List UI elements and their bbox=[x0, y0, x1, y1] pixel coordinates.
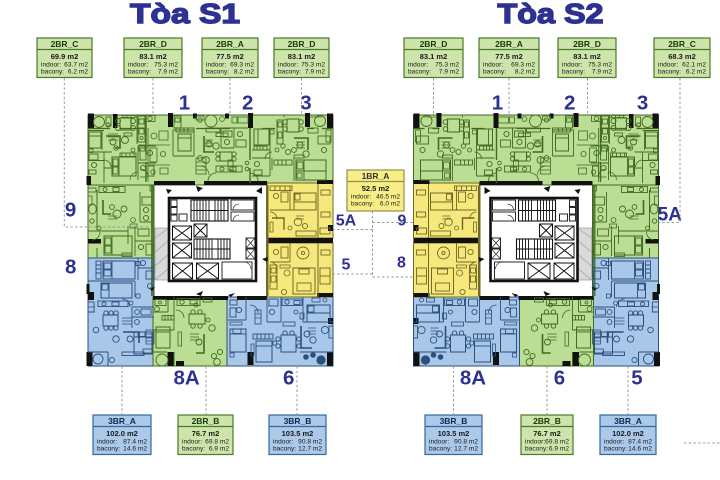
svg-text:bacony:: bacony: bbox=[525, 446, 548, 453]
svg-text:75.3 m2: 75.3 m2 bbox=[301, 62, 325, 69]
svg-text:3: 3 bbox=[637, 91, 648, 114]
svg-text:3BR_B: 3BR_B bbox=[440, 416, 468, 426]
svg-text:6.2 m2: 6.2 m2 bbox=[68, 69, 88, 76]
svg-text:bacony:: bacony: bbox=[97, 446, 120, 453]
svg-text:indoor:: indoor: bbox=[182, 439, 202, 446]
svg-text:2BR_B: 2BR_B bbox=[192, 416, 220, 426]
svg-text:indoor:: indoor: bbox=[604, 439, 624, 446]
svg-text:69.3 m2: 69.3 m2 bbox=[511, 62, 535, 69]
svg-text:8: 8 bbox=[65, 256, 76, 279]
svg-text:indoor:: indoor: bbox=[128, 62, 148, 69]
svg-text:indoor:: indoor: bbox=[429, 439, 449, 446]
svg-text:2: 2 bbox=[564, 91, 575, 114]
svg-text:103.5 m2: 103.5 m2 bbox=[438, 429, 470, 438]
svg-text:6.9 m2: 6.9 m2 bbox=[209, 446, 229, 453]
svg-text:87.4 m2: 87.4 m2 bbox=[123, 439, 147, 446]
svg-text:7.9 m2: 7.9 m2 bbox=[439, 69, 459, 76]
svg-text:bacony:: bacony: bbox=[562, 69, 585, 76]
svg-text:69.8 m2: 69.8 m2 bbox=[545, 439, 569, 446]
svg-text:bacony:: bacony: bbox=[658, 69, 681, 76]
svg-text:7.9 m2: 7.9 m2 bbox=[158, 69, 178, 76]
svg-text:46.5 m2: 46.5 m2 bbox=[376, 194, 400, 201]
svg-text:bacony:: bacony: bbox=[429, 446, 452, 453]
svg-text:9: 9 bbox=[397, 212, 406, 229]
svg-text:77.5 m2: 77.5 m2 bbox=[495, 52, 523, 61]
svg-text:3BR_A: 3BR_A bbox=[108, 416, 136, 426]
svg-text:indoor:: indoor: bbox=[97, 439, 117, 446]
svg-text:75.3 m2: 75.3 m2 bbox=[154, 62, 178, 69]
svg-text:bacony:: bacony: bbox=[483, 69, 506, 76]
svg-text:3BR_B: 3BR_B bbox=[284, 416, 312, 426]
svg-text:bacony:: bacony: bbox=[408, 69, 431, 76]
svg-text:7.9 m2: 7.9 m2 bbox=[592, 69, 612, 76]
svg-text:9: 9 bbox=[65, 198, 76, 221]
svg-text:2BR_C: 2BR_C bbox=[668, 39, 696, 49]
svg-text:63.7 m2: 63.7 m2 bbox=[64, 62, 88, 69]
svg-text:83.1 m2: 83.1 m2 bbox=[420, 52, 448, 61]
svg-text:12.7 m2: 12.7 m2 bbox=[298, 446, 322, 453]
svg-text:75.3 m2: 75.3 m2 bbox=[435, 62, 459, 69]
svg-text:76.7 m2: 76.7 m2 bbox=[192, 429, 220, 438]
svg-text:bacony:: bacony: bbox=[128, 69, 151, 76]
svg-text:indoor:: indoor: bbox=[483, 62, 503, 69]
svg-text:Tòa S1: Tòa S1 bbox=[130, 0, 240, 29]
svg-text:7.9 m2: 7.9 m2 bbox=[305, 69, 325, 76]
svg-text:52.5 m2: 52.5 m2 bbox=[362, 184, 390, 193]
svg-text:bacony:: bacony: bbox=[206, 69, 229, 76]
svg-text:1BR_A: 1BR_A bbox=[362, 171, 390, 181]
svg-text:87.4 m2: 87.4 m2 bbox=[628, 439, 652, 446]
svg-text:102.0 m2: 102.0 m2 bbox=[612, 429, 644, 438]
svg-text:3: 3 bbox=[300, 91, 311, 114]
svg-text:2BR_D: 2BR_D bbox=[420, 39, 448, 49]
svg-text:83.1 m2: 83.1 m2 bbox=[139, 52, 167, 61]
svg-text:2BR_C: 2BR_C bbox=[51, 39, 79, 49]
svg-text:14.6 m2: 14.6 m2 bbox=[123, 446, 147, 453]
svg-text:75.3 m2: 75.3 m2 bbox=[588, 62, 612, 69]
svg-text:indoor:: indoor: bbox=[562, 62, 582, 69]
svg-text:bacony:: bacony: bbox=[41, 69, 64, 76]
svg-text:8: 8 bbox=[397, 255, 406, 272]
svg-text:102.0 m2: 102.0 m2 bbox=[106, 429, 138, 438]
svg-text:90.8 m2: 90.8 m2 bbox=[454, 439, 478, 446]
svg-text:2BR_D: 2BR_D bbox=[288, 39, 316, 49]
svg-text:90.8 m2: 90.8 m2 bbox=[298, 439, 322, 446]
svg-text:2: 2 bbox=[242, 91, 253, 114]
svg-text:6: 6 bbox=[283, 366, 294, 389]
svg-text:69.9 m2: 69.9 m2 bbox=[51, 52, 79, 61]
svg-text:5: 5 bbox=[342, 256, 351, 273]
svg-text:bacony:: bacony: bbox=[273, 446, 296, 453]
svg-text:1: 1 bbox=[492, 91, 503, 114]
svg-text:bacony:: bacony: bbox=[604, 446, 627, 453]
svg-text:6.9 m2: 6.9 m2 bbox=[549, 446, 569, 453]
svg-text:5: 5 bbox=[631, 366, 642, 389]
svg-text:8.2 m2: 8.2 m2 bbox=[234, 69, 254, 76]
svg-text:69.8 m2: 69.8 m2 bbox=[205, 439, 229, 446]
svg-text:5A: 5A bbox=[336, 212, 357, 229]
svg-text:8.2 m2: 8.2 m2 bbox=[515, 69, 535, 76]
svg-text:103.5 m2: 103.5 m2 bbox=[282, 429, 314, 438]
svg-text:indoor:: indoor: bbox=[525, 439, 545, 446]
svg-text:2BR_D: 2BR_D bbox=[573, 39, 601, 49]
svg-text:3BR_A: 3BR_A bbox=[614, 416, 642, 426]
svg-text:2BR_A: 2BR_A bbox=[216, 39, 244, 49]
svg-text:1: 1 bbox=[179, 91, 190, 114]
svg-text:bacony:: bacony: bbox=[182, 446, 205, 453]
svg-text:62.1 m2: 62.1 m2 bbox=[682, 62, 706, 69]
svg-text:indoor:: indoor: bbox=[273, 439, 293, 446]
svg-text:6.2 m2: 6.2 m2 bbox=[686, 69, 706, 76]
svg-text:indoor:: indoor: bbox=[206, 62, 226, 69]
svg-text:indoor:: indoor: bbox=[408, 62, 428, 69]
svg-text:2BR_A: 2BR_A bbox=[495, 39, 523, 49]
svg-text:14.6 m2: 14.6 m2 bbox=[628, 446, 652, 453]
svg-text:indoor:: indoor: bbox=[278, 62, 298, 69]
svg-text:77.5 m2: 77.5 m2 bbox=[216, 52, 244, 61]
svg-text:83.1 m2: 83.1 m2 bbox=[573, 52, 601, 61]
svg-text:8A: 8A bbox=[173, 366, 199, 389]
svg-text:6.0 m2: 6.0 m2 bbox=[380, 201, 400, 208]
svg-text:76.7 m2: 76.7 m2 bbox=[533, 429, 561, 438]
svg-text:68.3 m2: 68.3 m2 bbox=[668, 52, 696, 61]
svg-text:8A: 8A bbox=[460, 366, 486, 389]
svg-text:bacony:: bacony: bbox=[278, 69, 301, 76]
svg-text:2BR_B: 2BR_B bbox=[533, 416, 561, 426]
svg-text:83.1 m2: 83.1 m2 bbox=[288, 52, 316, 61]
svg-text:2BR_D: 2BR_D bbox=[139, 39, 167, 49]
svg-text:6: 6 bbox=[554, 366, 565, 389]
svg-text:Tòa S2: Tòa S2 bbox=[498, 0, 604, 29]
svg-text:indoor:: indoor: bbox=[658, 62, 678, 69]
svg-text:indoor:: indoor: bbox=[41, 62, 61, 69]
svg-text:12.7 m2: 12.7 m2 bbox=[454, 446, 478, 453]
svg-text:69.3 m2: 69.3 m2 bbox=[230, 62, 254, 69]
svg-text:indoor:: indoor: bbox=[351, 194, 371, 201]
svg-text:bacony:: bacony: bbox=[351, 201, 374, 208]
